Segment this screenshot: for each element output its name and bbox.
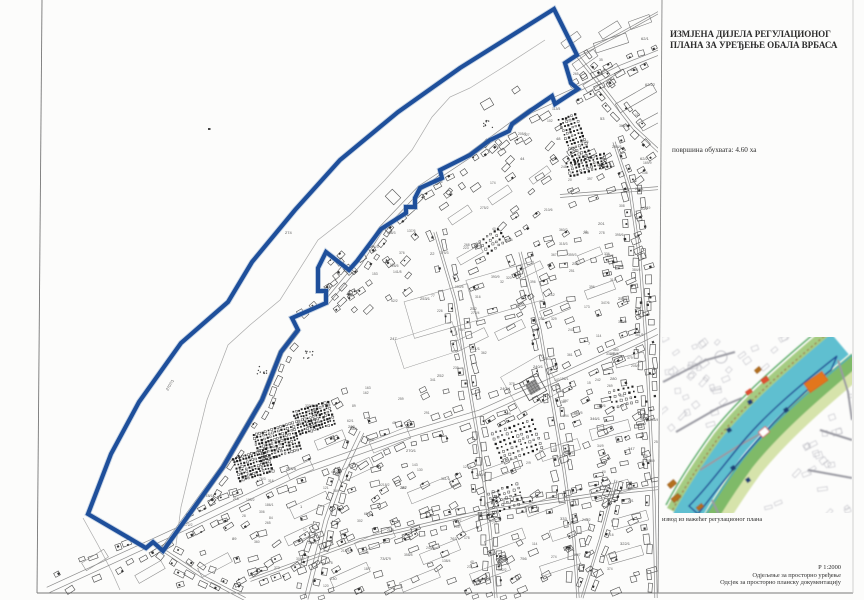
svg-text:178: 178 [464, 536, 470, 540]
svg-text:18/7: 18/7 [364, 567, 371, 571]
svg-text:160/2: 160/2 [605, 254, 614, 258]
svg-text:265: 265 [265, 521, 271, 525]
svg-text:114: 114 [596, 334, 602, 338]
svg-text:347/6: 347/6 [601, 301, 610, 305]
svg-text:316: 316 [268, 479, 274, 483]
svg-text:253: 253 [544, 356, 551, 361]
svg-text:247: 247 [390, 336, 397, 341]
svg-text:44: 44 [520, 156, 525, 161]
svg-text:397: 397 [587, 177, 593, 181]
svg-text:159/5: 159/5 [565, 451, 574, 455]
svg-text:269: 269 [607, 384, 613, 388]
svg-text:21/8: 21/8 [387, 528, 394, 532]
svg-text:270/1: 270/1 [406, 448, 417, 453]
svg-text:210/6: 210/6 [544, 208, 553, 212]
svg-text:366/4: 366/4 [650, 418, 659, 422]
svg-text:362: 362 [481, 351, 487, 355]
svg-text:174: 174 [490, 181, 496, 185]
svg-text:362/2: 362/2 [498, 568, 507, 572]
svg-text:17: 17 [303, 528, 307, 532]
svg-text:361/1: 361/1 [441, 477, 450, 481]
svg-text:265: 265 [573, 72, 579, 76]
svg-text:272/4: 272/4 [471, 311, 480, 315]
svg-text:304/9: 304/9 [308, 541, 317, 545]
svg-text:359/3: 359/3 [568, 253, 577, 257]
svg-text:100/5: 100/5 [455, 285, 464, 289]
svg-text:291: 291 [628, 499, 634, 503]
svg-text:218: 218 [233, 497, 239, 501]
svg-text:216: 216 [608, 533, 614, 537]
svg-text:53: 53 [600, 116, 605, 121]
svg-text:173: 173 [584, 305, 590, 309]
svg-text:42/8: 42/8 [630, 67, 639, 72]
svg-text:390/9: 390/9 [491, 275, 500, 279]
svg-text:763: 763 [450, 536, 457, 541]
svg-text:242: 242 [595, 378, 601, 382]
svg-text:87/4: 87/4 [517, 303, 524, 307]
svg-text:46/2: 46/2 [331, 470, 338, 474]
svg-text:375/3: 375/3 [440, 251, 449, 255]
svg-text:387: 387 [561, 400, 567, 404]
svg-text:141/8: 141/8 [393, 270, 402, 274]
svg-text:109/2: 109/2 [246, 498, 255, 502]
svg-text:77: 77 [431, 294, 435, 298]
svg-text:205/2: 205/2 [631, 364, 640, 368]
svg-text:2/9: 2/9 [526, 461, 531, 465]
svg-text:91: 91 [553, 448, 557, 452]
svg-text:194: 194 [563, 414, 569, 418]
svg-text:358/8: 358/8 [404, 553, 413, 557]
svg-text:251: 251 [539, 317, 545, 321]
svg-text:240/4: 240/4 [500, 386, 511, 391]
svg-text:368: 368 [645, 459, 651, 463]
svg-text:361: 361 [567, 353, 573, 357]
svg-text:205/1: 205/1 [518, 132, 527, 136]
svg-text:376: 376 [399, 251, 405, 255]
svg-text:34/9: 34/9 [597, 444, 604, 448]
svg-text:322/1: 322/1 [620, 541, 631, 546]
svg-text:35: 35 [599, 58, 603, 62]
svg-text:196/1: 196/1 [560, 377, 569, 381]
svg-text:396: 396 [530, 280, 536, 284]
svg-text:114: 114 [532, 542, 538, 546]
svg-text:205: 205 [454, 525, 460, 529]
svg-text:103/5: 103/5 [597, 404, 606, 408]
svg-text:62/1: 62/1 [641, 36, 650, 41]
svg-text:320: 320 [506, 276, 512, 280]
svg-text:31: 31 [640, 417, 644, 421]
svg-text:9/6: 9/6 [369, 438, 374, 442]
svg-text:291: 291 [424, 411, 430, 415]
svg-text:163: 163 [365, 386, 371, 390]
svg-text:254/1: 254/1 [612, 144, 623, 149]
svg-text:137/6: 137/6 [407, 229, 416, 233]
svg-text:19: 19 [390, 263, 394, 267]
svg-text:288: 288 [348, 424, 355, 429]
svg-text:40: 40 [470, 560, 474, 564]
svg-text:168/3: 168/3 [387, 231, 396, 235]
svg-text:88/7: 88/7 [574, 553, 581, 557]
svg-text:201/5: 201/5 [574, 411, 583, 415]
svg-text:248: 248 [561, 165, 567, 169]
svg-text:315/3: 315/3 [559, 242, 568, 246]
svg-text:396: 396 [589, 285, 595, 289]
svg-text:373: 373 [274, 566, 280, 570]
svg-text:48: 48 [556, 136, 561, 141]
svg-text:347: 347 [628, 446, 635, 451]
svg-text:62/1: 62/1 [347, 419, 354, 423]
svg-text:252: 252 [437, 373, 444, 378]
svg-text:111: 111 [635, 113, 640, 117]
svg-text:6/6: 6/6 [643, 454, 648, 458]
svg-text:20: 20 [568, 178, 572, 182]
svg-text:756: 756 [520, 556, 527, 561]
svg-text:243: 243 [568, 328, 574, 332]
svg-text:278: 278 [599, 231, 605, 235]
svg-text:255: 255 [583, 231, 589, 235]
svg-text:253/1: 253/1 [420, 296, 431, 301]
svg-text:120: 120 [323, 584, 329, 588]
svg-text:315: 315 [610, 278, 616, 282]
svg-text:69/6: 69/6 [364, 512, 371, 516]
svg-text:162: 162 [363, 391, 369, 395]
svg-text:84: 84 [269, 516, 273, 520]
svg-text:254: 254 [572, 261, 579, 266]
svg-text:379: 379 [627, 356, 633, 360]
svg-text:52/2: 52/2 [391, 299, 398, 303]
svg-text:62/2: 62/2 [640, 156, 649, 161]
svg-text:99/7: 99/7 [459, 328, 466, 332]
svg-text:231: 231 [467, 565, 473, 569]
svg-text:138/4: 138/4 [442, 559, 451, 563]
svg-text:252/9: 252/9 [654, 440, 663, 444]
svg-text:274: 274 [285, 230, 292, 235]
svg-text:275/2: 275/2 [480, 206, 489, 210]
svg-text:22: 22 [430, 251, 435, 256]
svg-text:308/7: 308/7 [296, 557, 305, 561]
svg-text:259: 259 [398, 397, 404, 401]
svg-text:368/3: 368/3 [619, 124, 628, 128]
svg-text:233/7: 233/7 [453, 519, 462, 523]
svg-text:252: 252 [470, 306, 477, 311]
svg-text:367: 367 [551, 253, 557, 257]
svg-text:178: 178 [327, 561, 333, 565]
svg-text:186/1: 186/1 [265, 503, 274, 507]
svg-text:302: 302 [357, 519, 363, 523]
svg-text:251: 251 [569, 269, 575, 273]
svg-text:274: 274 [551, 555, 557, 559]
svg-text:333: 333 [560, 516, 567, 521]
svg-text:245/2: 245/2 [582, 518, 591, 522]
svg-text:284/1: 284/1 [635, 187, 644, 191]
svg-text:240/1: 240/1 [533, 364, 544, 369]
svg-text:333/5: 333/5 [618, 320, 627, 324]
svg-text:127/4: 127/4 [463, 465, 472, 469]
svg-text:230: 230 [330, 576, 337, 581]
svg-text:63: 63 [610, 76, 615, 81]
svg-text:62/22: 62/22 [645, 82, 656, 87]
svg-text:360: 360 [254, 540, 260, 544]
svg-text:184: 184 [333, 489, 339, 493]
svg-text:280: 280 [610, 376, 617, 381]
svg-text:308: 308 [619, 204, 625, 208]
svg-text:218/2: 218/2 [381, 483, 390, 487]
svg-text:316: 316 [475, 295, 481, 299]
svg-text:329: 329 [551, 317, 557, 321]
svg-text:77/5: 77/5 [362, 551, 369, 555]
svg-text:102: 102 [547, 119, 553, 123]
svg-text:239: 239 [453, 366, 459, 370]
svg-text:1: 1 [300, 504, 303, 509]
svg-text:334/8: 334/8 [606, 352, 615, 356]
svg-text:232: 232 [548, 292, 555, 297]
svg-text:326: 326 [507, 238, 513, 242]
svg-text:143: 143 [412, 463, 418, 467]
svg-text:381/5: 381/5 [635, 333, 644, 337]
svg-text:32: 32 [500, 280, 504, 284]
svg-text:28: 28 [242, 514, 246, 518]
svg-text:15: 15 [587, 381, 591, 385]
svg-text:280/1: 280/1 [476, 472, 487, 477]
svg-text:329: 329 [505, 412, 511, 416]
svg-text:50/2: 50/2 [640, 206, 649, 211]
svg-text:223: 223 [463, 246, 469, 250]
svg-text:73/1: 73/1 [380, 556, 389, 561]
svg-text:89: 89 [352, 404, 356, 408]
svg-text:278/5: 278/5 [286, 466, 297, 471]
svg-text:169/9: 169/9 [643, 161, 652, 165]
svg-text:76/3: 76/3 [259, 477, 266, 481]
svg-text:218/5: 218/5 [341, 549, 350, 553]
svg-text:251/1: 251/1 [470, 346, 481, 351]
svg-text:341: 341 [430, 378, 436, 382]
svg-text:7/3: 7/3 [492, 521, 497, 525]
svg-text:255/1: 255/1 [618, 296, 629, 301]
svg-text:7: 7 [588, 341, 591, 346]
svg-text:153: 153 [372, 272, 378, 276]
svg-text:360/2: 360/2 [559, 228, 568, 232]
svg-text:244/6: 244/6 [426, 546, 435, 550]
svg-text:148/9: 148/9 [487, 552, 496, 556]
svg-text:201: 201 [598, 221, 605, 226]
svg-text:136: 136 [642, 171, 648, 175]
svg-text:130: 130 [417, 468, 423, 472]
svg-text:143: 143 [554, 378, 560, 382]
svg-text:20: 20 [602, 470, 606, 474]
svg-text:306: 306 [259, 510, 265, 514]
svg-text:121: 121 [323, 486, 329, 490]
svg-text:384/4: 384/4 [632, 268, 641, 272]
svg-text:395/6: 395/6 [615, 233, 624, 237]
svg-text:89: 89 [232, 536, 237, 541]
svg-text:287: 287 [400, 485, 407, 490]
svg-text:2707/1: 2707/1 [165, 378, 176, 392]
svg-text:332/8: 332/8 [305, 404, 314, 408]
svg-text:374: 374 [607, 567, 613, 571]
svg-text:226: 226 [437, 309, 443, 313]
svg-text:346/1: 346/1 [590, 416, 601, 421]
svg-text:48: 48 [392, 421, 396, 425]
